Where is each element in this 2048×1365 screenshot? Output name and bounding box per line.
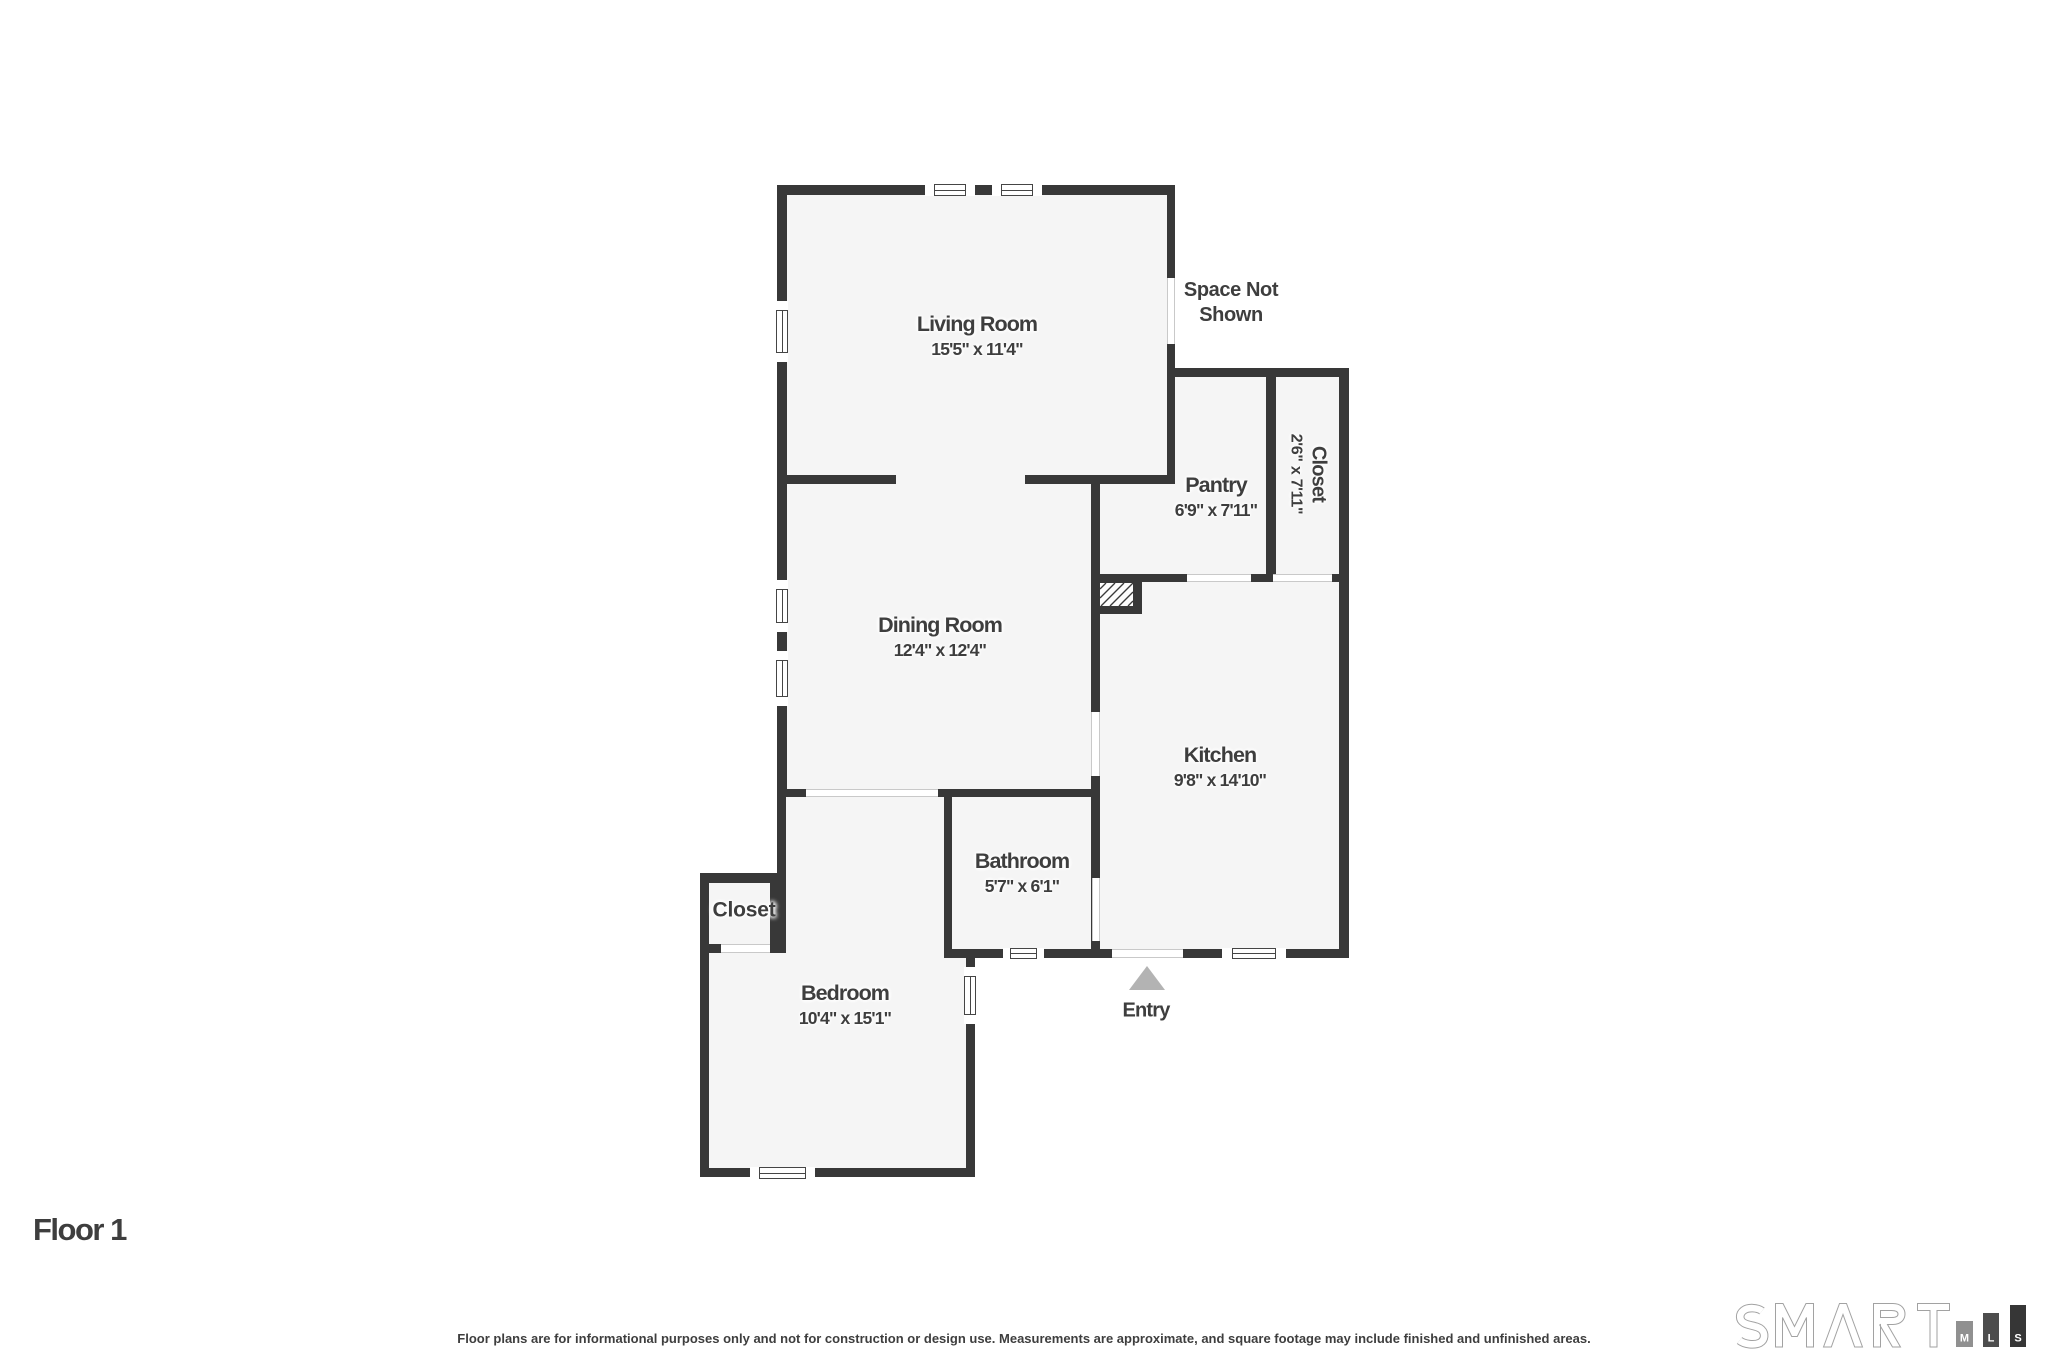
svg-text:L: L xyxy=(1988,1333,1995,1345)
svg-text:S: S xyxy=(2014,1333,2021,1345)
svg-text:M: M xyxy=(1960,1333,1969,1345)
